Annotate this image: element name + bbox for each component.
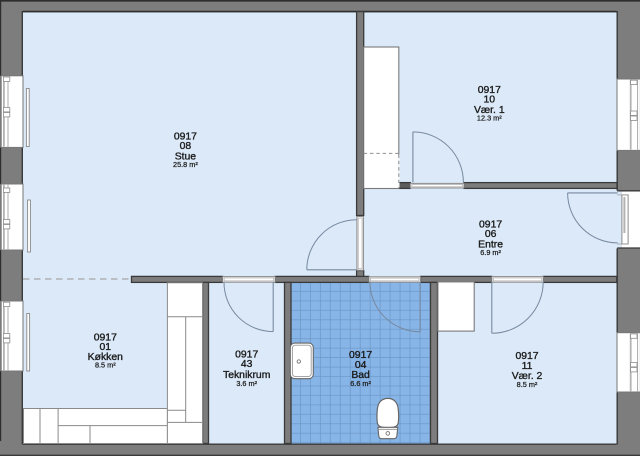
svg-text:3.6 m²: 3.6 m² [236, 379, 257, 388]
svg-text:12.3 m²: 12.3 m² [477, 114, 502, 123]
svg-text:8.5 m²: 8.5 m² [517, 380, 538, 389]
svg-text:6.6 m²: 6.6 m² [350, 379, 371, 388]
svg-text:25.8 m²: 25.8 m² [173, 160, 198, 169]
svg-text:6.9 m²: 6.9 m² [480, 248, 501, 257]
svg-text:8.5 m²: 8.5 m² [95, 361, 116, 370]
svg-text:43: 43 [241, 359, 253, 370]
